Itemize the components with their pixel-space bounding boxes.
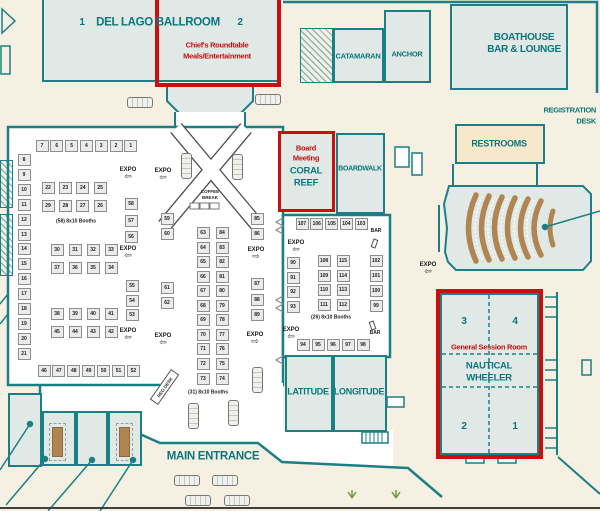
nautical-dashed-dividers [442, 295, 537, 453]
floorplan-overlay-layer [0, 0, 600, 511]
plants [348, 490, 400, 498]
floorplan-map: 7654321891011121314151617181920212223242… [0, 0, 600, 511]
callout-lines [0, 211, 600, 511]
